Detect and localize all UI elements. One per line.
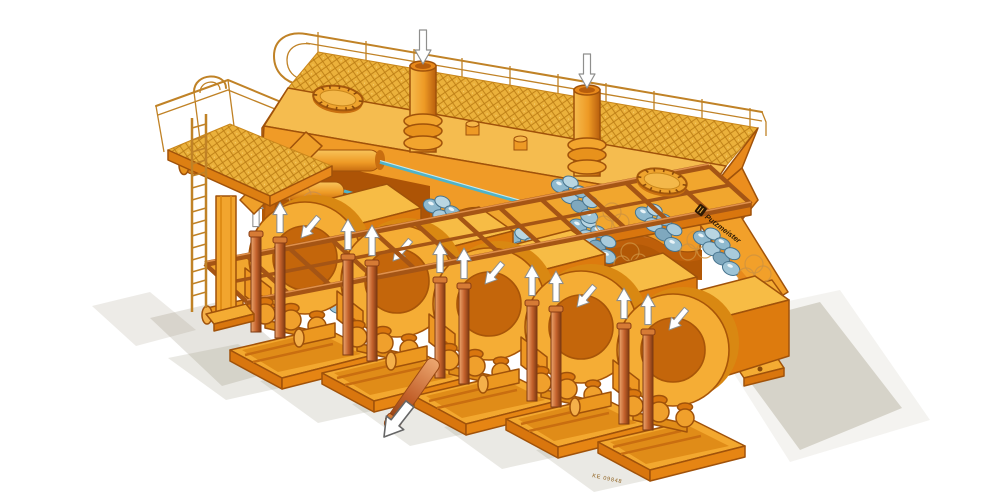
platform-leg [216, 196, 236, 318]
standpipe-left [404, 30, 442, 152]
pump-station-illustration: Putzmeister KE 09848 [0, 0, 1000, 500]
top-nub [514, 136, 527, 150]
illustration-canvas: Putzmeister KE 09848 [0, 0, 1000, 500]
top-nub [466, 121, 479, 135]
standpipe-right [568, 54, 606, 176]
inflow-down-arrow [415, 30, 431, 64]
